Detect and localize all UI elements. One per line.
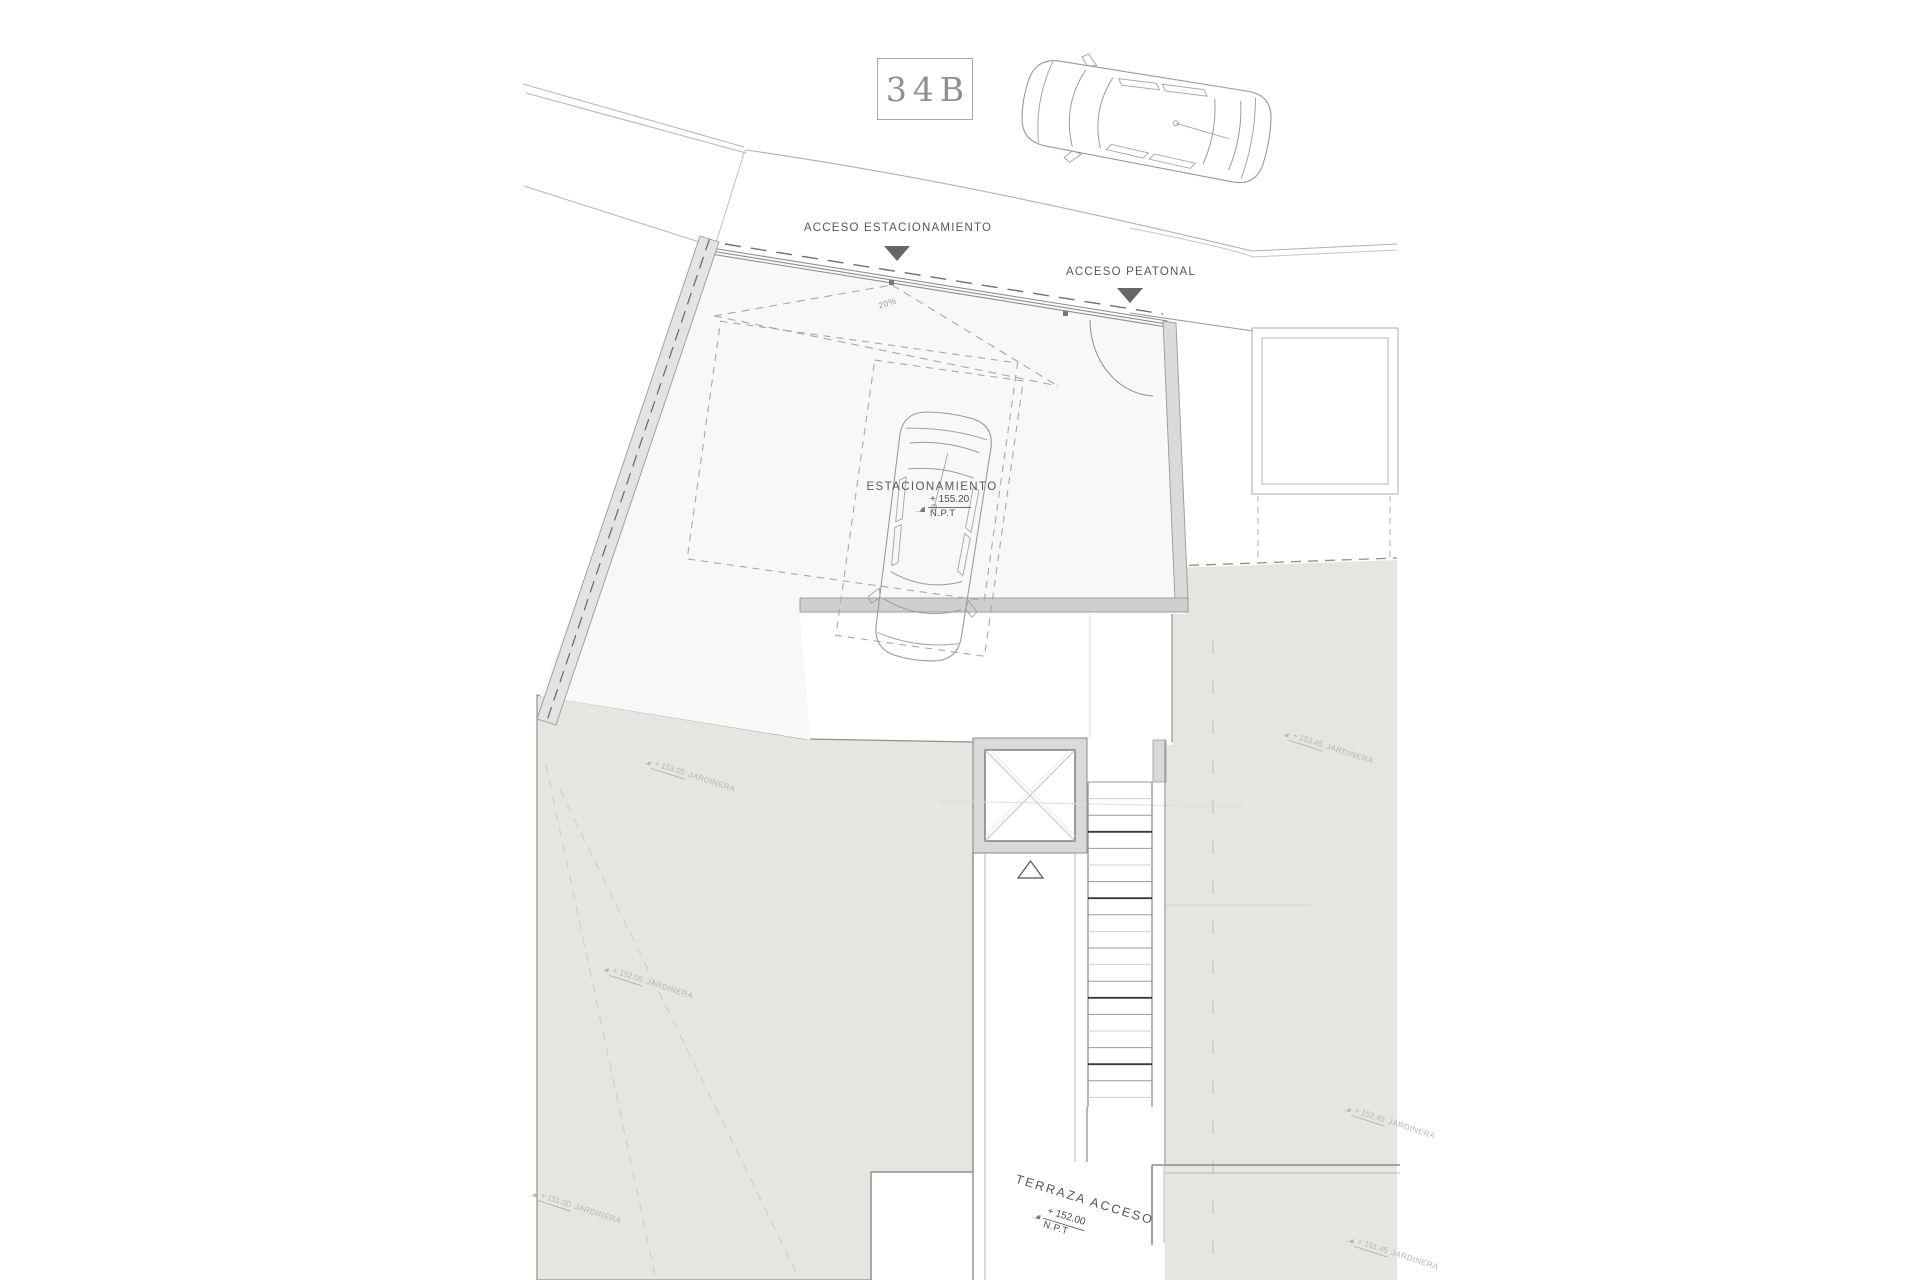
parking-access-label: ACCESO ESTACIONAMIENTO xyxy=(804,222,992,234)
level-marker-icon xyxy=(596,956,612,972)
level-marker-icon xyxy=(1276,721,1292,737)
level-marker-icon xyxy=(1341,1227,1357,1243)
street-car-drawing xyxy=(1014,44,1278,195)
site-plan-drawing xyxy=(0,0,1920,1280)
parking-plot-area xyxy=(540,249,1186,740)
site-plan-page: 34B ACCESO ESTACIONAMIENTO ACCESO PEATON… xyxy=(0,0,1920,1280)
level-marker-icon xyxy=(638,749,654,765)
parking-access-arrow-icon xyxy=(884,246,910,261)
level-marker-icon xyxy=(1025,1201,1044,1220)
parking-label: ESTACIONAMIENTO xyxy=(866,481,997,493)
plan-number-box: 34B xyxy=(877,58,973,120)
direction-arrow-icon xyxy=(1018,861,1043,878)
level-marker-icon xyxy=(524,1181,540,1197)
terrace-area-right xyxy=(1165,558,1397,1280)
skylight-rectangle xyxy=(1252,328,1398,564)
level-marker-icon xyxy=(1338,1096,1354,1112)
parking-level-value: + 155.20 xyxy=(928,494,971,508)
plan-number: 34B xyxy=(886,70,970,109)
parking-level-marker: + 155.20 N.P.T xyxy=(908,494,971,519)
stair-treads xyxy=(1088,782,1152,1097)
parking-level-datum: N.P.T xyxy=(928,508,971,520)
pedestrian-access-label: ACCESO PEATONAL xyxy=(1066,266,1196,278)
pedestrian-access-arrow-icon xyxy=(1117,288,1143,303)
level-marker-icon xyxy=(908,495,925,512)
terrace-area-left xyxy=(537,695,973,1280)
elevator-shaft xyxy=(973,738,1087,853)
landing-wall xyxy=(800,598,1188,612)
